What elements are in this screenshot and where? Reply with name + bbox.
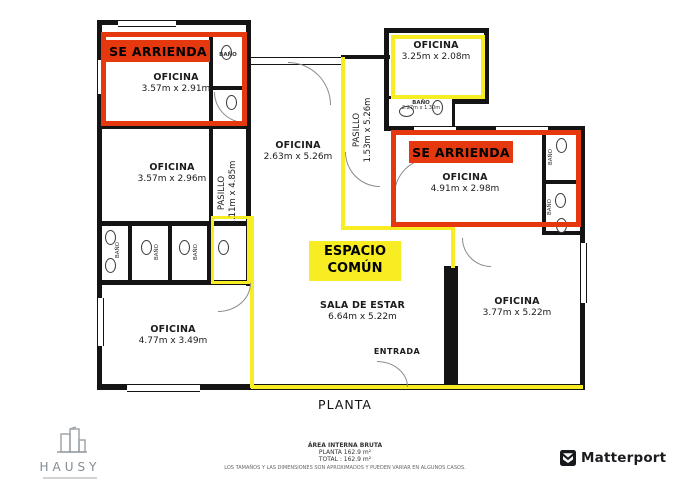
room-dims: 4.77m x 3.49m — [112, 336, 234, 347]
door-arc — [288, 62, 331, 105]
room-dims: 1.53m x 5.26m — [363, 98, 374, 163]
room-name: OFICINA — [456, 296, 578, 308]
banner-text: COMÚN — [328, 261, 383, 278]
matterport-wordmark: Matterport — [581, 450, 666, 466]
room-label-oficina-center-top: OFICINA 2.63m x 5.26m — [240, 140, 356, 163]
room-name: OFICINA — [116, 72, 236, 84]
room-dims: 3.57m x 2.96m — [112, 174, 232, 185]
disclaimer: LOS TAMAÑOS Y LAS DIMENSIONES SON APROXI… — [205, 465, 485, 471]
room-name: OFICINA — [240, 140, 356, 152]
matterport-logo: Matterport — [560, 450, 666, 466]
toilet-icon — [141, 240, 152, 255]
room-label-oficina-arriendo-2: OFICINA 4.91m x 2.98m — [405, 172, 525, 195]
room-dims: 3.25m x 2.08m — [382, 52, 490, 63]
window — [580, 243, 587, 303]
common-area-outline — [451, 228, 455, 268]
room-label-oficina-bottom-left: OFICINA 4.77m x 3.49m — [112, 324, 234, 347]
room-name: BAÑO — [206, 52, 250, 58]
wall — [452, 99, 489, 104]
hausy-logo: HAUSY — [22, 426, 118, 479]
window — [97, 298, 104, 346]
room-label-pasillo-center: PASILLO 1.53m x 5.26m — [352, 98, 374, 163]
common-area-outline — [211, 216, 250, 284]
floor-plan: SE ARRIENDA SE ARRIENDA ESPACIO COMÚN OF… — [0, 0, 680, 480]
toilet-icon — [179, 240, 190, 255]
common-area-outline — [250, 216, 254, 388]
room-dims: 3.77m x 5.22m — [456, 308, 578, 319]
banner-text: SE ARRIENDA — [412, 145, 510, 160]
entrada-label: ENTRADA — [360, 347, 434, 356]
room-label-bano-right-2: BAÑO — [547, 199, 553, 215]
room-dims: 4.91m x 2.98m — [405, 184, 525, 195]
wall — [128, 221, 132, 285]
room-label-bano-right-1: BAÑO — [548, 149, 554, 165]
room-label-oficina-arriendo-1: OFICINA 3.57m x 2.91m — [116, 72, 236, 95]
matterport-icon — [560, 450, 576, 466]
room-name: OFICINA — [382, 40, 490, 52]
door-arc — [462, 238, 491, 267]
area-summary: ÁREA INTERNA BRUTA PLANTA 162.9 m² TOTAL… — [205, 442, 485, 471]
toilet-icon — [105, 258, 116, 273]
room-name: PASILLO — [217, 161, 228, 226]
espacio-comun-banner: ESPACIO COMÚN — [309, 241, 401, 281]
room-dims: 2.63m x 5.26m — [240, 152, 356, 163]
hausy-wordmark: HAUSY — [22, 460, 118, 474]
room-label-bano-cluster-2: BAÑO — [154, 244, 160, 260]
room-label-bano-top-center: BAÑO 2.27m x 1.30m — [392, 100, 450, 112]
room-name: OFICINA — [112, 162, 232, 174]
window — [127, 384, 200, 392]
area-planta: PLANTA 162.9 m² — [205, 449, 485, 456]
room-label-oficina-top-right: OFICINA 3.25m x 2.08m — [382, 40, 490, 63]
room-label-bano-cluster-3: BAÑO — [193, 244, 199, 260]
room-name: SALA DE ESTAR — [290, 300, 435, 312]
room-label-sala-de-estar: SALA DE ESTAR 6.64m x 5.22m — [290, 300, 435, 323]
se-arrienda-banner-1: SE ARRIENDA — [106, 40, 210, 62]
area-title: ÁREA INTERNA BRUTA — [205, 442, 485, 449]
room-label-oficina-left: OFICINA 3.57m x 2.96m — [112, 162, 232, 185]
plan-title: PLANTA — [270, 397, 420, 412]
room-label-pasillo-left: PASILLO 1.11m x 4.85m — [217, 161, 239, 226]
window — [118, 20, 176, 27]
hausy-tagline — [43, 477, 97, 479]
room-dims: 1.11m x 4.85m — [228, 161, 239, 226]
common-area-outline — [251, 385, 583, 389]
room-label-bano-cluster-1: BAÑO — [115, 242, 121, 258]
wall — [384, 28, 489, 33]
room-name: PASILLO — [352, 98, 363, 163]
area-total: TOTAL : 162.9 m² — [205, 456, 485, 463]
room-name: OFICINA — [405, 172, 525, 184]
room-label-oficina-bottom-right: OFICINA 3.77m x 5.22m — [456, 296, 578, 319]
door-arc — [218, 283, 251, 312]
banner-text: SE ARRIENDA — [109, 44, 207, 59]
se-arrienda-banner-2: SE ARRIENDA — [409, 141, 513, 163]
wall — [444, 266, 458, 386]
door-arc — [377, 361, 408, 387]
banner-text: ESPACIO — [324, 244, 386, 261]
room-dims: 2.27m x 1.30m — [392, 106, 450, 112]
hausy-building-icon — [49, 426, 91, 454]
toilet-icon — [218, 240, 229, 255]
wall — [168, 221, 172, 285]
room-dims: 6.64m x 5.22m — [290, 312, 435, 323]
room-name: OFICINA — [112, 324, 234, 336]
room-label-bano-top-left: BAÑO — [206, 52, 250, 58]
room-dims: 3.57m x 2.91m — [116, 84, 236, 95]
